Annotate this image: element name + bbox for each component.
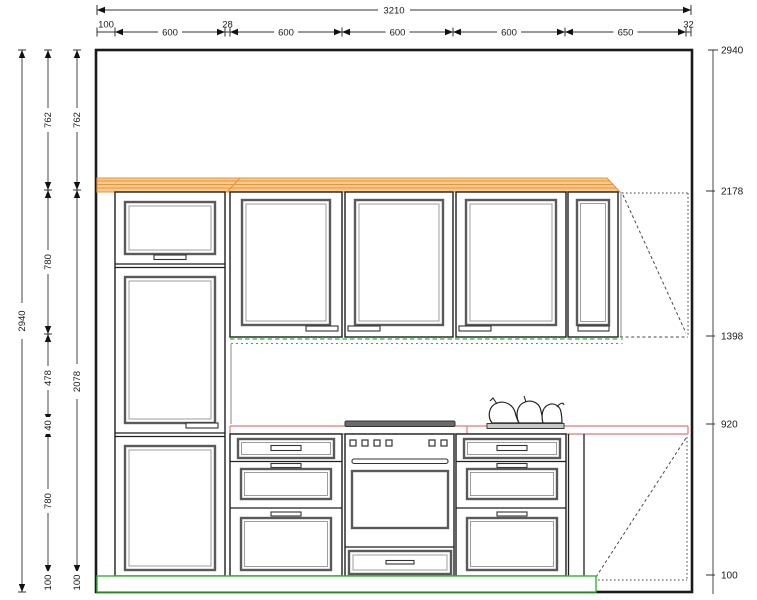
- dim-seg-100-label: 100: [98, 20, 114, 31]
- tall-cabinet: [115, 192, 225, 576]
- elevation-drawing-canvas: 3210 100 600 28 600 600 600 650 32: [0, 0, 757, 600]
- dim-left2-40: 40: [43, 420, 54, 431]
- level-2178: 2178: [721, 187, 744, 198]
- mid-door-handle: [186, 423, 218, 428]
- cornice: [97, 178, 620, 192]
- dim-left3-2078: 2078: [72, 371, 83, 392]
- oven-door-handle: [352, 459, 448, 464]
- drawer3-handle: [497, 512, 527, 516]
- oven-knob-icon: [374, 440, 380, 446]
- dim-left2-478: 478: [43, 370, 54, 386]
- dim-left-col2: 762 780 478 40 780 100: [43, 50, 55, 594]
- dim-left3-762: 762: [72, 112, 83, 128]
- oven-window: [352, 471, 448, 528]
- dim-left-col3: 762 2078 100: [72, 50, 84, 594]
- wall-cabinet-narrow: [568, 192, 621, 337]
- dim-right-levels: 2940 2178 1398 920 100: [706, 46, 744, 595]
- hob-icon: [345, 421, 455, 427]
- oven-unit: [345, 434, 454, 576]
- dim-seg-600b-label: 600: [278, 28, 294, 39]
- wall-cab4-handle: [578, 326, 609, 331]
- wall-cab1-handle: [306, 326, 338, 331]
- level-1398: 1398: [721, 332, 744, 343]
- flip-door-handle: [154, 255, 186, 260]
- drawer-unit-left: [230, 434, 342, 576]
- oven-knob-icon: [429, 440, 435, 446]
- oven-knob-icon: [386, 440, 392, 446]
- dim-seg-600c-label: 600: [390, 28, 406, 39]
- dim-top-segments: 100 600 28 600 600 600 650 32: [97, 20, 694, 39]
- dim-left2-762: 762: [43, 112, 54, 128]
- dim-left3-100: 100: [72, 575, 83, 591]
- drawer2-handle: [271, 464, 301, 468]
- drawer2-handle: [497, 464, 527, 468]
- dim-seg-600d-label: 600: [501, 28, 517, 39]
- wall-cab2-handle: [348, 326, 380, 331]
- drawer1-handle: [271, 446, 301, 451]
- dim-left2-100: 100: [43, 575, 54, 591]
- dim-top-overall: 3210: [97, 5, 691, 17]
- wall-cab3-handle: [459, 326, 491, 331]
- plinth: [97, 576, 596, 592]
- level-920: 920: [721, 420, 738, 431]
- dim-seg-650-label: 650: [618, 28, 634, 39]
- dim-left-total: 2940: [17, 50, 29, 592]
- oven-drawer-handle: [386, 561, 414, 565]
- tall-cabinet-mid-door: [125, 277, 215, 423]
- wall-cabinet-1: [230, 192, 342, 337]
- elevation-drawing: 3210 100 600 28 600 600 600 650 32: [0, 0, 757, 600]
- wall-cabinet-2: [345, 192, 453, 337]
- wall-cabinet-row: [230, 192, 621, 337]
- drawer-unit-right: [456, 434, 566, 576]
- tray-icon: [487, 424, 564, 429]
- dim-seg-28-label: 28: [222, 20, 233, 31]
- oven-knob-icon: [350, 440, 356, 446]
- wall-cabinet-3: [456, 192, 566, 337]
- drawer3-handle: [271, 512, 301, 516]
- dim-left2-780b: 780: [43, 493, 54, 509]
- level-2940: 2940: [721, 46, 744, 57]
- dim-seg-600a-label: 600: [162, 28, 178, 39]
- oven-knob-icon: [441, 440, 447, 446]
- tall-cabinet-bottom-door: [125, 446, 215, 570]
- tall-cabinet-flip-door: [125, 202, 215, 254]
- drawer1-handle: [497, 446, 527, 451]
- dim-seg-32-label: 32: [683, 20, 694, 31]
- level-100: 100: [721, 571, 738, 582]
- dim-left2-780a: 780: [43, 254, 54, 270]
- dim-top-overall-label: 3210: [383, 6, 404, 17]
- dim-left-total-label: 2940: [17, 310, 28, 331]
- oven-knob-icon: [362, 440, 368, 446]
